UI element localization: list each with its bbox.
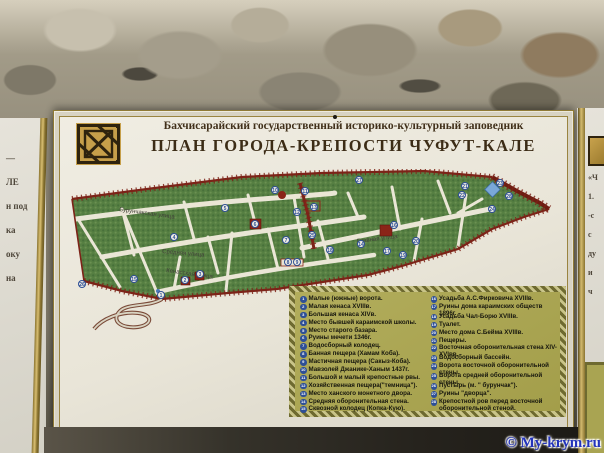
map-marker-4: 4 (170, 233, 178, 241)
map-marker-23: 23 (496, 179, 504, 187)
legend-column-right: 16Усадьба А.С.Фирковича XVIIIв.17Руины д… (431, 296, 558, 409)
legend-item-number: 27 (431, 391, 438, 398)
legend-item-number: 26 (431, 383, 438, 390)
legend-item-text: Усадьба Чал-Борю XVIIIв. (439, 314, 518, 321)
legend-item-number: 18 (431, 314, 438, 321)
map-marker-25: 25 (308, 231, 316, 239)
legend-item-text: Руины "дворца". (439, 391, 491, 398)
legend-item-text: Пещеры. (439, 338, 466, 345)
legend-item-text: Усадьба А.С.Фирковича XVIIIв. (439, 296, 533, 303)
map-marker-22: 22 (458, 191, 466, 199)
legend-item-number: 5 (300, 328, 307, 335)
map-marker-27: 27 (355, 176, 363, 184)
map-marker-14: 14 (357, 240, 365, 248)
map-marker-9: 9 (293, 258, 301, 266)
right-neighbor-sign: «Ч1.-ссдуич (577, 108, 604, 453)
legend-item-text: Мастичная пещера (Сакыз-Коба). (309, 359, 411, 366)
legend-item-text: Мавзолей Джанике-Ханым 1437г. (309, 367, 410, 374)
legend-item-number: 17 (431, 304, 438, 311)
map-marker-10: 10 (271, 186, 279, 194)
map-marker-2: 2 (181, 276, 189, 284)
legend-item-text: Большая кенаса XIVв. (309, 312, 377, 319)
legend-panel: 1Малые (южные) ворота.2Малая кенаса XVII… (289, 286, 566, 417)
legend-item-text: Крепостной ров перед восточной обороните… (439, 399, 557, 413)
legend-item-number: 2 (300, 304, 307, 311)
legend-item-text: Сквозной колодец (Копка-Кую). (309, 406, 405, 413)
legend-item-text: Водосборный бассейн. (439, 355, 511, 362)
map-marker-5: 5 (221, 204, 229, 212)
map-marker-13: 13 (310, 203, 318, 211)
legend-item-text: Руины мечети 1346г. (309, 335, 372, 342)
map-marker-3: 3 (196, 270, 204, 278)
legend-item-number: 15 (300, 406, 307, 413)
map-marker-11: 11 (301, 187, 309, 195)
watermark: © My-krym.ru (506, 435, 601, 452)
map-marker-20: 20 (412, 237, 420, 245)
legend-item-number: 25 (431, 373, 438, 380)
legend-item-text: Место ханского монетного двора. (309, 391, 413, 398)
left-neighbor-sign: —ЛЕн подкаокуна (0, 118, 46, 453)
legend-item-number: 21 (431, 338, 438, 345)
map-marker-26: 26 (78, 280, 86, 288)
map-marker-19: 19 (399, 251, 407, 259)
map-marker-21: 21 (461, 182, 469, 190)
legend-item-text: Туалет. (439, 322, 461, 329)
map-marker-1: 1 (157, 291, 165, 299)
map-marker-24: 24 (488, 205, 496, 213)
legend-item-number: 19 (431, 322, 438, 329)
sign-title: ПЛАН ГОРОДА-КРЕПОСТИ ЧУФУТ-КАЛЕ (124, 136, 563, 156)
legend-item-number: 13 (300, 391, 307, 398)
legend-item-text: Хозяйственная пещера("темница"). (309, 383, 418, 390)
legend-item-number: 7 (300, 343, 307, 350)
map-marker-7: 7 (282, 236, 290, 244)
map-marker-16: 16 (390, 221, 398, 229)
legend-item-number: 16 (431, 296, 438, 303)
legend-column-left: 1Малые (южные) ворота.2Малая кенаса XVII… (300, 296, 427, 409)
legend-item-number: 20 (431, 330, 438, 337)
legend-item-number: 8 (300, 351, 307, 358)
legend-item-text: Пустырь (м. " бурунчак"). (439, 383, 517, 390)
legend-item-number: 11 (300, 375, 307, 382)
wall-shadow-strip (44, 427, 578, 453)
legend-item-text: Место дома С.Бейма XVIIIв. (439, 330, 523, 337)
chufut-kale-plan-sign: Бахчисарайский государственный историко-… (53, 110, 574, 434)
photo-of-information-board: —ЛЕн подкаокуна «Ч1.-ссдуич Бахчисарайск… (0, 0, 604, 453)
map-marker-17: 17 (383, 247, 391, 255)
legend-item-text: Большой и малый крепостные рвы. (309, 375, 420, 382)
legend-item-number: 6 (300, 335, 307, 342)
legend-item-number: 12 (300, 383, 307, 390)
legend-item-number: 28 (431, 399, 438, 406)
legend-item-text: Место бывшей караимской школы. (309, 320, 417, 327)
legend-panel-inner: 1Малые (южные) ворота.2Малая кенаса XVII… (295, 292, 560, 411)
legend-item-number: 4 (300, 320, 307, 327)
map-marker-15: 15 (130, 275, 138, 283)
map-marker-28: 28 (505, 192, 513, 200)
legend-item-text: Место старого базара. (309, 328, 378, 335)
legend-item-number: 23 (431, 355, 438, 362)
legend-item: 15Сквозной колодец (Копка-Кую). (300, 406, 427, 414)
legend-item-text: Малые (южные) ворота. (309, 296, 383, 303)
legend-item: 28Крепостной ров перед восточной оборони… (431, 399, 558, 409)
legend-item-text: Водосборный колодец. (309, 343, 381, 350)
right-sign-gold-border (578, 108, 585, 453)
map-marker-6: 6 (251, 220, 259, 228)
legend-item-text: Средняя оборонительная стена. (309, 399, 409, 406)
legend-item-number: 14 (300, 399, 307, 406)
map-marker-8: 8 (284, 258, 292, 266)
legend-item-number: 3 (300, 312, 307, 319)
legend-item-number: 24 (431, 363, 438, 370)
right-sign-emblem-icon (588, 136, 604, 166)
legend-item-text: Банная пещера (Хамам Коба). (309, 351, 400, 358)
map-marker-12: 12 (293, 208, 301, 216)
legend-item-text: Малая кенаса XVIIIв. (309, 304, 372, 311)
legend-item-number: 9 (300, 359, 307, 366)
sign-supertitle: Бахчисарайский государственный историко-… (124, 120, 563, 132)
legend-item-number: 1 (300, 296, 307, 303)
map-marker-18: 18 (326, 246, 334, 254)
legend-item-number: 10 (300, 367, 307, 374)
karaite-knot-emblem-icon (76, 123, 121, 165)
legend-item-number: 22 (431, 345, 438, 352)
mounting-dot (333, 115, 337, 119)
